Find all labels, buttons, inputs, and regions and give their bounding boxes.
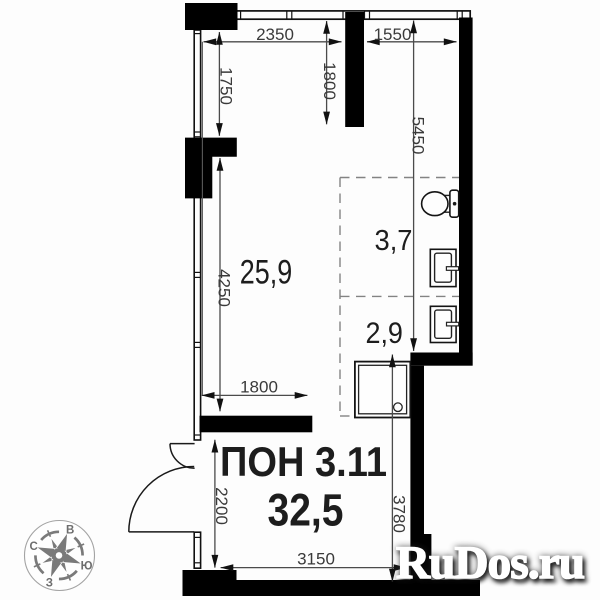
svg-text:Ю: Ю: [81, 561, 93, 573]
svg-text:2350: 2350: [256, 25, 294, 44]
svg-text:5450: 5450: [409, 117, 428, 155]
svg-text:2,9: 2,9: [365, 317, 403, 350]
svg-text:3,7: 3,7: [375, 225, 413, 257]
svg-text:С: С: [29, 541, 37, 553]
svg-text:3150: 3150: [297, 550, 335, 569]
svg-text:ПОН 3.11: ПОН 3.11: [220, 438, 387, 485]
svg-text:З: З: [46, 578, 53, 590]
svg-text:3780: 3780: [389, 495, 408, 533]
svg-text:25,9: 25,9: [240, 253, 293, 291]
svg-text:1800: 1800: [240, 377, 278, 396]
svg-text:4250: 4250: [215, 269, 234, 307]
svg-text:2200: 2200: [212, 487, 231, 525]
svg-text:В: В: [66, 525, 74, 537]
svg-text:1750: 1750: [216, 67, 235, 105]
svg-text:1550: 1550: [374, 25, 412, 44]
svg-text:RuDos.ru: RuDos.ru: [396, 537, 585, 589]
svg-text:32,5: 32,5: [268, 484, 344, 535]
svg-text:1800: 1800: [320, 62, 339, 100]
